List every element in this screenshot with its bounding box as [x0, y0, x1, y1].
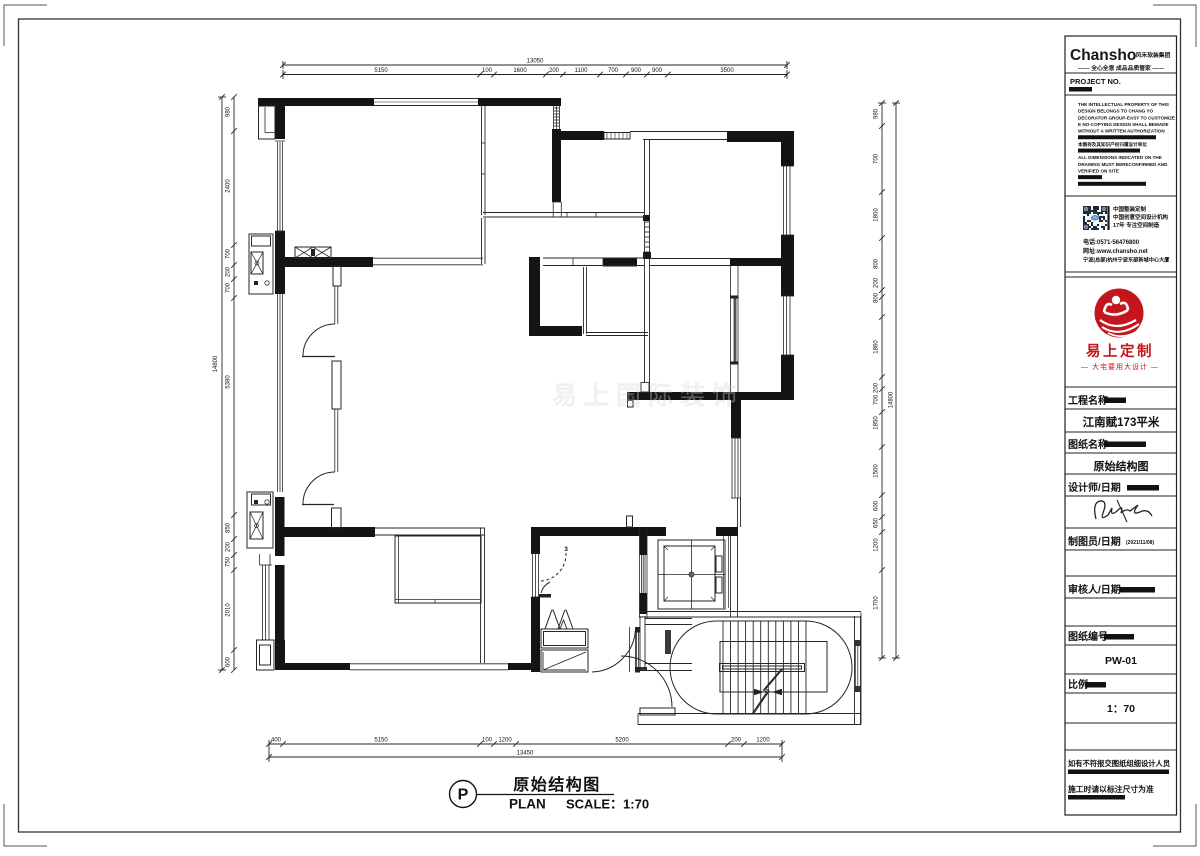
- svg-text:980: 980: [874, 108, 880, 119]
- svg-text:17年 专注空间制造: 17年 专注空间制造: [1113, 221, 1160, 229]
- svg-text:PW-01: PW-01: [1105, 655, 1137, 667]
- svg-text:1850: 1850: [874, 416, 880, 430]
- svg-text:5150: 5150: [374, 738, 388, 744]
- svg-text:原始结构图: 原始结构图: [1094, 459, 1149, 473]
- svg-text:E NO-COPYING DESIGN SHALL BEMA: E NO-COPYING DESIGN SHALL BEMADE: [1078, 122, 1169, 127]
- svg-text:如有不符报交图纸组细设计人员: 如有不符报交图纸组细设计人员: [1068, 759, 1171, 768]
- svg-text:200: 200: [874, 382, 880, 393]
- svg-text:3: 3: [564, 546, 568, 553]
- svg-text:1700: 1700: [874, 596, 880, 610]
- svg-text:800: 800: [874, 292, 880, 303]
- svg-text:审核人/日期: 审核人/日期: [1068, 583, 1121, 596]
- svg-text:200: 200: [226, 266, 232, 277]
- svg-text:宁波(总部)杭州宁波东部新城中心大厦: 宁波(总部)杭州宁波东部新城中心大厦: [1083, 256, 1170, 264]
- svg-text:800: 800: [874, 258, 880, 269]
- svg-text:图纸编号: 图纸编号: [1068, 630, 1108, 643]
- svg-text:VERIFIED ON SITE: VERIFIED ON SITE: [1078, 169, 1119, 174]
- svg-text:1100: 1100: [575, 68, 589, 74]
- svg-text:DESIGN BELONGS TO CHANG YO: DESIGN BELONGS TO CHANG YO: [1078, 109, 1154, 114]
- svg-text:DRAWING MUST BERECONFIRMED AND: DRAWING MUST BERECONFIRMED AND: [1078, 162, 1168, 167]
- svg-text:750: 750: [226, 556, 232, 567]
- svg-text:13450: 13450: [517, 751, 534, 757]
- svg-text:600: 600: [226, 656, 232, 667]
- svg-text:易上国际装饰: 易上国际装饰: [552, 382, 744, 410]
- svg-text:5380: 5380: [226, 375, 232, 389]
- svg-text:1200: 1200: [756, 738, 770, 744]
- svg-text:中国创意空间设计机构: 中国创意空间设计机构: [1113, 213, 1169, 221]
- svg-text:江南赋173平米: 江南赋173平米: [1083, 415, 1160, 429]
- svg-text:900: 900: [631, 68, 642, 74]
- svg-text:(2021/11/08): (2021/11/08): [1126, 540, 1154, 546]
- svg-text:2010: 2010: [226, 603, 232, 617]
- svg-text:700: 700: [226, 248, 232, 259]
- svg-text:WITHOUT A WRITTEN AUTHORIZATIO: WITHOUT A WRITTEN AUTHORIZATION: [1078, 129, 1165, 134]
- svg-text:SCALE：1:70: SCALE：1:70: [566, 797, 649, 812]
- svg-text:13050: 13050: [527, 59, 544, 65]
- svg-text:本图样及其知识产权归属设计单位: 本图样及其知识产权归属设计单位: [1077, 141, 1147, 148]
- svg-text:P: P: [458, 787, 469, 804]
- svg-text:DECORATOR GROUP-EASY TO CUSTOM: DECORATOR GROUP-EASY TO CUSTOMIZE: [1078, 115, 1175, 120]
- svg-text:中国整装定制: 中国整装定制: [1113, 205, 1147, 213]
- svg-text:2400: 2400: [226, 179, 232, 193]
- svg-text:风禾软装集团: 风禾软装集团: [1136, 51, 1171, 59]
- svg-text:1200: 1200: [498, 738, 512, 744]
- svg-text:900: 900: [652, 68, 663, 74]
- svg-text:5150: 5150: [374, 68, 388, 74]
- svg-text:400: 400: [271, 738, 282, 744]
- svg-text:100: 100: [482, 68, 493, 74]
- svg-text:1800: 1800: [874, 208, 880, 222]
- svg-text:1：70: 1：70: [1107, 703, 1135, 715]
- svg-text:980: 980: [226, 106, 232, 117]
- svg-text:200: 200: [549, 68, 560, 74]
- svg-text:14800: 14800: [213, 355, 219, 372]
- svg-text:700: 700: [874, 394, 880, 405]
- svg-text:设计师/日期: 设计师/日期: [1068, 481, 1121, 494]
- svg-text:易上定制: 易上定制: [1086, 342, 1154, 360]
- svg-text:5200: 5200: [615, 738, 629, 744]
- svg-text:网址:www.chansho.net: 网址:www.chansho.net: [1083, 247, 1148, 255]
- svg-text:— 大宅要用大设计 —: — 大宅要用大设计 —: [1081, 362, 1159, 371]
- svg-text:14800: 14800: [889, 391, 895, 408]
- svg-text:850: 850: [226, 522, 232, 533]
- svg-text:1860: 1860: [874, 340, 880, 354]
- svg-text:1600: 1600: [513, 68, 527, 74]
- svg-text:ALL DIMENSIONS INDICATED ON TH: ALL DIMENSIONS INDICATED ON THE: [1078, 155, 1162, 160]
- svg-text:—— 全心全意 成品品质管家 ——: —— 全心全意 成品品质管家 ——: [1078, 64, 1164, 72]
- svg-text:PLAN: PLAN: [509, 797, 546, 812]
- svg-text:700: 700: [226, 282, 232, 293]
- svg-text:100: 100: [482, 738, 493, 744]
- svg-text:施工时请以标注尺寸为准: 施工时请以标注尺寸为准: [1068, 784, 1154, 794]
- svg-text:600: 600: [874, 500, 880, 511]
- svg-text:700: 700: [608, 68, 619, 74]
- svg-text:工程名称: 工程名称: [1068, 394, 1108, 407]
- svg-text:700: 700: [874, 153, 880, 164]
- svg-text:图纸名称: 图纸名称: [1068, 438, 1108, 451]
- svg-text:1200: 1200: [874, 538, 880, 552]
- svg-text:650: 650: [874, 517, 880, 528]
- svg-text:3500: 3500: [720, 68, 734, 74]
- svg-text:THE INTELLECTUAL PROPERTY OF T: THE INTELLECTUAL PROPERTY OF THIS: [1078, 102, 1169, 107]
- svg-text:200: 200: [874, 277, 880, 288]
- svg-text:Chansho: Chansho: [1070, 47, 1136, 64]
- svg-text:200: 200: [226, 541, 232, 552]
- svg-text:制图员/日期: 制图员/日期: [1068, 535, 1121, 548]
- svg-text:原始结构图: 原始结构图: [513, 775, 601, 794]
- svg-text:1500: 1500: [874, 464, 880, 478]
- svg-text:电话:0571-56476800: 电话:0571-56476800: [1083, 238, 1140, 246]
- svg-text:200: 200: [731, 738, 742, 744]
- svg-text:PROJECT NO.: PROJECT NO.: [1070, 77, 1121, 86]
